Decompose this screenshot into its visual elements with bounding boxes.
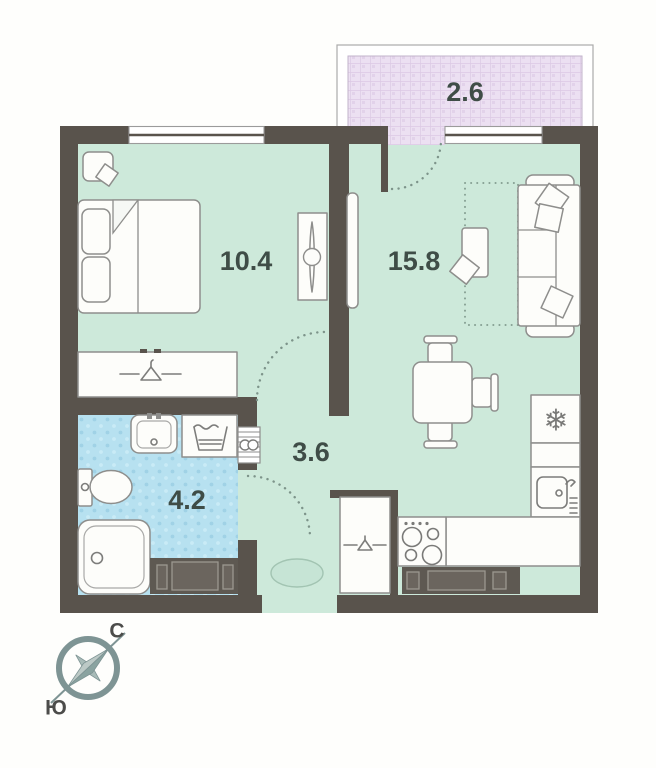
- stove: [398, 517, 446, 566]
- toilet-bowl: [90, 471, 132, 504]
- bathroom-dark-cabinet: [150, 558, 238, 594]
- tv-panel-living: [347, 193, 358, 308]
- wall-partition-bedroom-living: [329, 144, 349, 416]
- towel-radiator: [238, 427, 260, 463]
- compass-needle-north-half: [63, 644, 108, 687]
- hallway-area-label: 3.6: [292, 437, 330, 467]
- wall-closet-right: [390, 490, 398, 595]
- chair-back: [491, 374, 498, 411]
- balcony-area-label: 2.6: [446, 77, 484, 107]
- kitchen-sink-unit: [531, 467, 580, 517]
- hall-closet: [340, 497, 390, 593]
- chair-back: [424, 336, 457, 343]
- living-area-label: 15.8: [388, 246, 441, 276]
- washing-machine: [182, 415, 237, 457]
- kitchen-counter-mid: [531, 443, 580, 467]
- chair-back: [424, 441, 457, 448]
- living-window: [445, 127, 542, 144]
- bathroom-area-label: 4.2: [168, 485, 206, 515]
- bedroom-wardrobe: [78, 349, 237, 397]
- compass-south-label: Ю: [45, 697, 67, 720]
- compass-north-label: С: [109, 620, 124, 643]
- pillow: [82, 257, 110, 302]
- entry-rug: [271, 559, 323, 587]
- shower-tray: [78, 520, 150, 594]
- bathroom-sink: [131, 413, 177, 453]
- bedroom-window: [129, 127, 264, 144]
- chair-seat: [472, 378, 492, 407]
- sofa: [518, 175, 580, 337]
- wall-balcony-door-jamb: [381, 144, 388, 192]
- wall-bedroom-bathroom: [60, 397, 257, 415]
- pillow: [82, 209, 110, 254]
- floor-plan-page: ❄: [0, 0, 656, 768]
- compass-rose: С Ю: [45, 620, 125, 720]
- dining-table: [413, 362, 472, 423]
- double-bed: [78, 200, 200, 313]
- tv-stand-bedroom: [298, 213, 327, 300]
- wall-right: [580, 126, 598, 613]
- balcony-door-opening: [388, 126, 445, 145]
- kitchen-counter-bottom: [446, 517, 580, 566]
- compass-needle-south-half: [68, 649, 113, 692]
- wall-bathroom-right-lower: [238, 540, 257, 595]
- chair-seat: [428, 343, 452, 364]
- floor-plan-svg: ❄: [0, 0, 656, 768]
- bedroom-area-label: 10.4: [220, 246, 273, 276]
- snowflake-icon: ❄: [543, 405, 568, 438]
- sofa-pillow: [535, 204, 563, 232]
- kitchen-dark-cabinet: [402, 567, 520, 594]
- toilet: [78, 469, 132, 506]
- entrance-opening: [262, 595, 337, 613]
- wall-left: [60, 126, 78, 613]
